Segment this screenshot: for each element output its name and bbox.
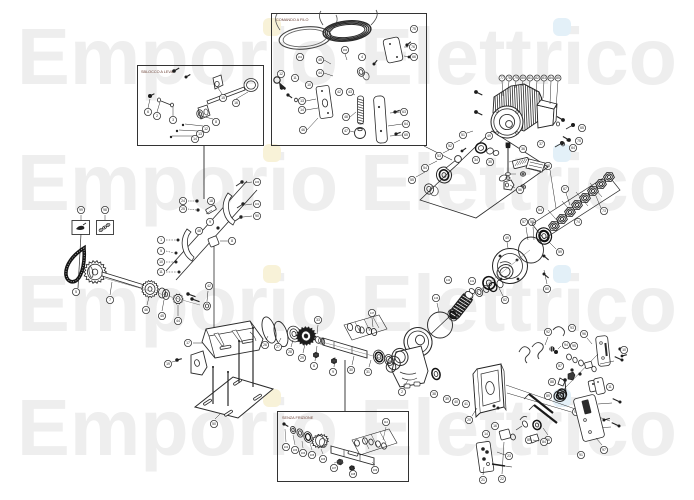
svg-text:110: 110 xyxy=(384,420,389,424)
svg-text:142: 142 xyxy=(446,278,451,282)
svg-text:28: 28 xyxy=(288,350,292,354)
svg-text:47: 47 xyxy=(344,129,348,133)
svg-text:105: 105 xyxy=(310,453,315,457)
svg-text:99: 99 xyxy=(79,208,83,212)
svg-text:24: 24 xyxy=(181,199,185,203)
svg-text:6: 6 xyxy=(147,110,149,114)
svg-text:108: 108 xyxy=(351,472,356,476)
svg-text:11: 11 xyxy=(608,385,612,389)
svg-text:Emporio Elettrico: Emporio Elettrico xyxy=(17,138,677,227)
svg-text:64: 64 xyxy=(571,146,575,150)
svg-text:50: 50 xyxy=(212,422,216,426)
svg-text:66: 66 xyxy=(412,55,416,59)
svg-text:98: 98 xyxy=(103,208,107,212)
svg-text:SENZA FRIZIONE: SENZA FRIZIONE xyxy=(282,416,314,420)
svg-text:14: 14 xyxy=(484,432,488,436)
svg-text:45: 45 xyxy=(318,58,322,62)
svg-text:16: 16 xyxy=(493,424,497,428)
svg-text:5: 5 xyxy=(75,290,77,294)
svg-text:104: 104 xyxy=(301,451,306,455)
svg-text:46: 46 xyxy=(144,308,148,312)
svg-text:52: 52 xyxy=(448,144,452,148)
svg-text:9: 9 xyxy=(209,220,211,224)
svg-text:11: 11 xyxy=(293,76,297,80)
svg-text:93: 93 xyxy=(570,326,574,330)
svg-text:9: 9 xyxy=(332,370,334,374)
svg-text:84: 84 xyxy=(542,440,546,444)
svg-text:81: 81 xyxy=(528,76,532,80)
svg-text:63: 63 xyxy=(402,110,406,114)
svg-text:75: 75 xyxy=(412,27,416,31)
svg-text:96: 96 xyxy=(582,332,586,336)
svg-text:13: 13 xyxy=(198,132,202,136)
svg-text:80: 80 xyxy=(521,76,525,80)
svg-text:15: 15 xyxy=(221,96,225,100)
svg-text:30: 30 xyxy=(349,368,353,372)
svg-text:13: 13 xyxy=(300,99,304,103)
svg-text:102: 102 xyxy=(284,445,289,449)
svg-text:65: 65 xyxy=(580,126,584,130)
svg-text:45: 45 xyxy=(160,314,164,318)
svg-text:76: 76 xyxy=(411,45,415,49)
svg-text:79: 79 xyxy=(514,76,518,80)
svg-text:59: 59 xyxy=(558,250,562,254)
svg-text:27: 27 xyxy=(276,345,280,349)
svg-text:10: 10 xyxy=(307,83,311,87)
svg-text:22: 22 xyxy=(500,477,504,481)
svg-text:23: 23 xyxy=(507,454,511,458)
svg-text:62: 62 xyxy=(503,298,507,302)
svg-text:34: 34 xyxy=(474,158,478,162)
svg-text:16: 16 xyxy=(234,101,238,105)
svg-text:160: 160 xyxy=(343,48,348,52)
svg-text:64: 64 xyxy=(404,122,408,126)
svg-text:42: 42 xyxy=(207,284,211,288)
svg-text:91: 91 xyxy=(579,453,583,457)
svg-text:64: 64 xyxy=(538,208,542,212)
svg-text:6: 6 xyxy=(313,364,315,368)
svg-text:74: 74 xyxy=(576,220,580,224)
svg-text:38: 38 xyxy=(432,392,436,396)
svg-text:31: 31 xyxy=(366,370,370,374)
svg-text:103: 103 xyxy=(293,448,298,452)
svg-text:37: 37 xyxy=(539,142,543,146)
svg-text:83: 83 xyxy=(542,76,546,80)
svg-text:147: 147 xyxy=(370,311,375,315)
svg-text:18: 18 xyxy=(209,199,213,203)
svg-text:14: 14 xyxy=(300,108,304,112)
svg-text:88: 88 xyxy=(550,380,554,384)
svg-text:49: 49 xyxy=(487,134,491,138)
svg-text:2: 2 xyxy=(156,114,158,118)
svg-text:4: 4 xyxy=(361,55,363,59)
svg-text:21: 21 xyxy=(481,478,485,482)
svg-text:46: 46 xyxy=(301,128,305,132)
svg-text:COMANDO A FILO: COMANDO A FILO xyxy=(276,18,309,22)
svg-text:73: 73 xyxy=(602,209,606,213)
svg-text:Emporio Elettrico: Emporio Elettrico xyxy=(17,12,677,101)
svg-text:Emporio Elettrico: Emporio Elettrico xyxy=(17,259,677,348)
svg-text:42: 42 xyxy=(337,90,341,94)
svg-text:107: 107 xyxy=(332,466,337,470)
svg-text:94: 94 xyxy=(564,343,568,347)
svg-text:97: 97 xyxy=(602,448,606,452)
svg-text:82: 82 xyxy=(535,76,539,80)
svg-text:12: 12 xyxy=(204,127,208,131)
svg-text:54: 54 xyxy=(423,166,427,170)
svg-text:51: 51 xyxy=(461,133,465,137)
svg-text:60: 60 xyxy=(545,287,549,291)
svg-text:40: 40 xyxy=(454,400,458,404)
svg-text:39: 39 xyxy=(445,397,449,401)
svg-text:Emporio Elettrico: Emporio Elettrico xyxy=(17,383,677,472)
svg-text:75: 75 xyxy=(577,139,581,143)
svg-text:90: 90 xyxy=(255,214,259,218)
svg-text:92: 92 xyxy=(546,330,550,334)
svg-text:78: 78 xyxy=(507,76,511,80)
svg-text:161: 161 xyxy=(298,55,303,59)
svg-text:95: 95 xyxy=(572,344,576,348)
svg-text:67: 67 xyxy=(563,187,567,191)
svg-text:41: 41 xyxy=(464,402,468,406)
svg-text:19: 19 xyxy=(166,362,170,366)
svg-text:10: 10 xyxy=(159,260,163,264)
svg-text:87: 87 xyxy=(558,364,562,368)
svg-text:SBLOCCO A LEVA: SBLOCCO A LEVA xyxy=(141,70,174,74)
svg-text:55: 55 xyxy=(410,178,414,182)
svg-text:48: 48 xyxy=(344,115,348,119)
svg-text:48: 48 xyxy=(197,229,201,233)
svg-text:11: 11 xyxy=(159,270,163,274)
svg-text:43: 43 xyxy=(348,90,352,94)
svg-text:33: 33 xyxy=(316,318,320,322)
svg-text:29: 29 xyxy=(300,356,304,360)
svg-text:56: 56 xyxy=(518,188,522,192)
svg-text:20: 20 xyxy=(467,418,471,422)
svg-text:26: 26 xyxy=(263,343,267,347)
svg-text:100: 100 xyxy=(255,180,260,184)
svg-text:44: 44 xyxy=(176,319,180,323)
svg-text:77: 77 xyxy=(500,76,504,80)
svg-text:36: 36 xyxy=(521,147,525,151)
svg-text:57: 57 xyxy=(522,220,526,224)
svg-text:14: 14 xyxy=(193,137,197,141)
svg-text:12: 12 xyxy=(279,72,283,76)
svg-text:2: 2 xyxy=(401,390,403,394)
svg-text:8: 8 xyxy=(231,239,233,243)
svg-text:44: 44 xyxy=(318,71,322,75)
svg-text:143: 143 xyxy=(434,296,439,300)
svg-text:8: 8 xyxy=(215,120,217,124)
svg-text:106: 106 xyxy=(321,457,326,461)
svg-text:7: 7 xyxy=(109,298,111,302)
svg-text:3: 3 xyxy=(172,118,174,122)
svg-text:53: 53 xyxy=(437,154,441,158)
svg-text:5: 5 xyxy=(160,249,162,253)
svg-text:85: 85 xyxy=(556,76,560,80)
svg-text:1: 1 xyxy=(160,238,162,242)
svg-text:141: 141 xyxy=(470,279,475,283)
svg-text:10: 10 xyxy=(622,348,626,352)
svg-text:84: 84 xyxy=(549,76,553,80)
svg-text:17: 17 xyxy=(186,341,190,345)
svg-text:35: 35 xyxy=(488,160,492,164)
svg-text:25: 25 xyxy=(181,207,185,211)
svg-text:49: 49 xyxy=(505,236,509,240)
svg-text:109: 109 xyxy=(373,468,378,472)
svg-text:101: 101 xyxy=(255,202,260,206)
svg-text:89: 89 xyxy=(546,394,550,398)
svg-text:65: 65 xyxy=(404,133,408,137)
